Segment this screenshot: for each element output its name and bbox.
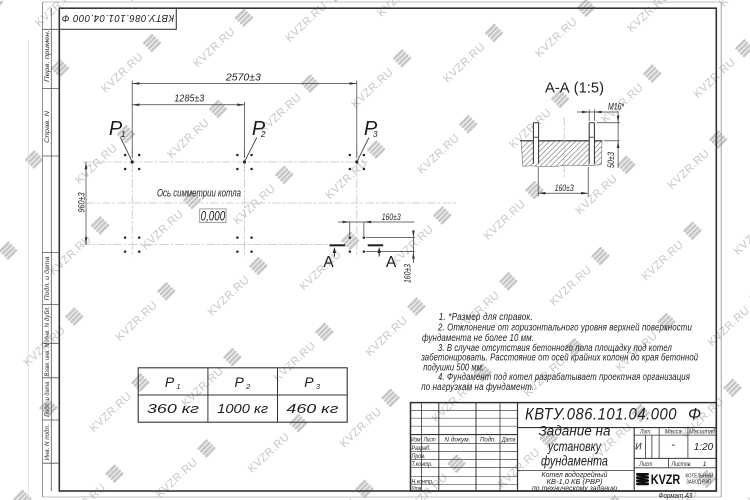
- svg-text:Задание на: Задание на: [539, 423, 611, 438]
- svg-text:460 кг: 460 кг: [286, 401, 339, 416]
- svg-text:KVZR: KVZR: [651, 472, 681, 487]
- svg-text:М16*: М16*: [608, 101, 624, 111]
- svg-text:Формат А3: Формат А3: [659, 491, 693, 500]
- svg-text:2. Отклонение от горизонтально: 2. Отклонение от горизонтального уровня …: [437, 322, 692, 333]
- svg-text:1: 1: [176, 382, 180, 391]
- svg-text:P: P: [165, 374, 175, 390]
- svg-text:1: 1: [121, 129, 126, 139]
- svg-text:Лит.: Лит.: [640, 428, 652, 435]
- svg-text:Лист: Лист: [423, 436, 436, 443]
- svg-text:Н.контр.: Н.контр.: [412, 479, 434, 486]
- svg-text:-: -: [671, 439, 675, 451]
- svg-text:160±3: 160±3: [555, 183, 574, 193]
- svg-text:1:20: 1:20: [694, 442, 714, 453]
- svg-text:1285±3: 1285±3: [174, 94, 204, 105]
- svg-text:А-А (1:5): А-А (1:5): [545, 80, 604, 96]
- svg-text:2: 2: [260, 129, 266, 139]
- svg-text:Справ. N: Справ. N: [44, 111, 51, 143]
- svg-text:А: А: [323, 254, 334, 271]
- svg-text:Подп. и дата: Подп. и дата: [43, 381, 51, 416]
- svg-text:Дата: Дата: [501, 436, 515, 443]
- svg-text:Лист: Лист: [639, 461, 653, 468]
- svg-text:160±3: 160±3: [382, 212, 401, 222]
- svg-text:2: 2: [245, 382, 251, 391]
- svg-text:И: И: [635, 442, 642, 452]
- svg-text:360 кг: 360 кг: [147, 401, 200, 416]
- svg-text:Инв. N подл.: Инв. N подл.: [43, 424, 51, 460]
- svg-text:Масштаб: Масштаб: [689, 427, 716, 435]
- svg-text:1: 1: [703, 461, 707, 468]
- svg-text:Пров.: Пров.: [412, 453, 426, 460]
- svg-text:ЗАВОД РЭП: ЗАВОД РЭП: [686, 480, 711, 486]
- svg-text:Разраб.: Разраб.: [412, 444, 431, 452]
- svg-text:установку: установку: [547, 439, 602, 454]
- svg-text:1000 кг: 1000 кг: [217, 401, 269, 416]
- svg-text:Подп. и дата: Подп. и дата: [43, 256, 51, 300]
- svg-text:КВТУ.086.101.04.000 Ф: КВТУ.086.101.04.000 Ф: [61, 12, 174, 24]
- svg-text:160±3: 160±3: [402, 264, 412, 283]
- svg-text:А: А: [386, 254, 397, 271]
- svg-text:Подп.: Подп.: [480, 435, 496, 443]
- svg-text:Листов: Листов: [671, 461, 691, 468]
- svg-text:Ф: Ф: [688, 406, 701, 424]
- svg-text:Ось симметрии котла: Ось симметрии котла: [157, 188, 241, 200]
- svg-text:по нагрузкам на фундамент.: по нагрузкам на фундамент.: [421, 381, 534, 393]
- svg-text:Перв. примен.: Перв. примен.: [44, 30, 51, 82]
- svg-text:Т.контр.: Т.контр.: [412, 461, 433, 468]
- svg-text:P: P: [304, 374, 314, 390]
- svg-text:по техническому заданию: по техническому заданию: [532, 483, 617, 492]
- svg-text:Масса: Масса: [665, 428, 682, 435]
- svg-text:Взам. инв. N: Взам. инв. N: [44, 343, 51, 376]
- svg-text:1. *Размер для справок.: 1. *Размер для справок.: [439, 312, 533, 323]
- svg-text:Утв.: Утв.: [411, 486, 423, 493]
- svg-text:3: 3: [373, 129, 378, 139]
- svg-text:960±3: 960±3: [76, 193, 86, 213]
- svg-text:КОТЕЛЬНЫЙ: КОТЕЛЬНЫЙ: [686, 471, 714, 479]
- svg-text:фундамента: фундамента: [541, 454, 608, 469]
- svg-text:2570±3: 2570±3: [225, 72, 262, 83]
- svg-text:Изм: Изм: [411, 436, 421, 443]
- svg-text:Инв. N дубл.: Инв. N дубл.: [43, 306, 51, 342]
- svg-text:N докум.: N докум.: [444, 435, 470, 443]
- svg-text:0,000: 0,000: [201, 209, 226, 224]
- svg-text:КВТУ.086.101.04.000: КВТУ.086.101.04.000: [525, 406, 677, 424]
- svg-text:P: P: [235, 374, 245, 390]
- svg-text:50±3: 50±3: [606, 152, 616, 168]
